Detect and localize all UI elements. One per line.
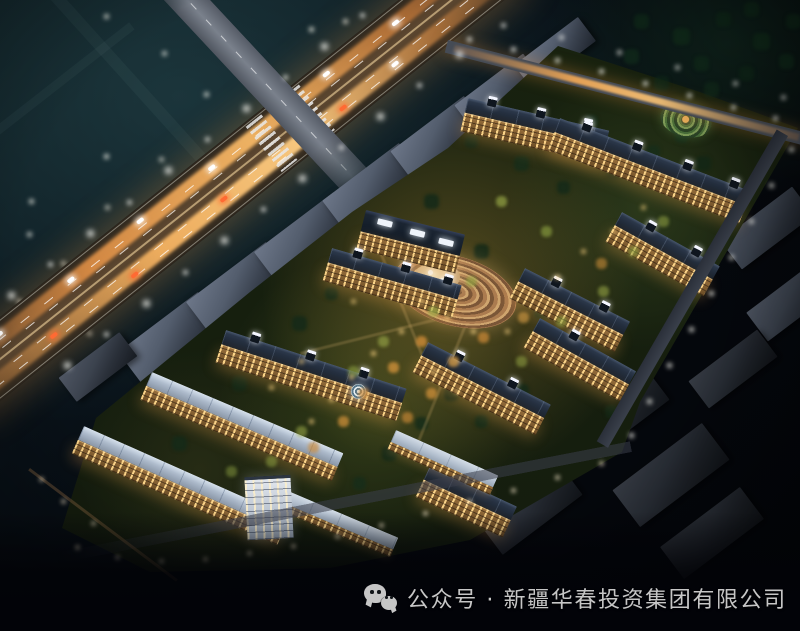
wechat-icon (364, 583, 397, 613)
plaza-canopy (428, 270, 433, 275)
context-building (746, 259, 800, 342)
garden-lights (0, 0, 3, 3)
wechat-eye (390, 596, 393, 599)
context-building (688, 330, 777, 409)
caption: 公众号 · 新疆华春投资集团有限公司 (364, 582, 787, 614)
wechat-bubble-small (381, 596, 397, 610)
wechat-eye (385, 596, 388, 599)
aerial-night-rendering: 公众号 · 新疆华春投资集团有限公司 (0, 0, 800, 631)
caption-text: 公众号 · 新疆华春投资集团有限公司 (407, 582, 787, 614)
context-building (660, 487, 764, 579)
wechat-eye (370, 590, 374, 594)
fountain (351, 384, 366, 399)
wechat-eye (377, 590, 381, 594)
